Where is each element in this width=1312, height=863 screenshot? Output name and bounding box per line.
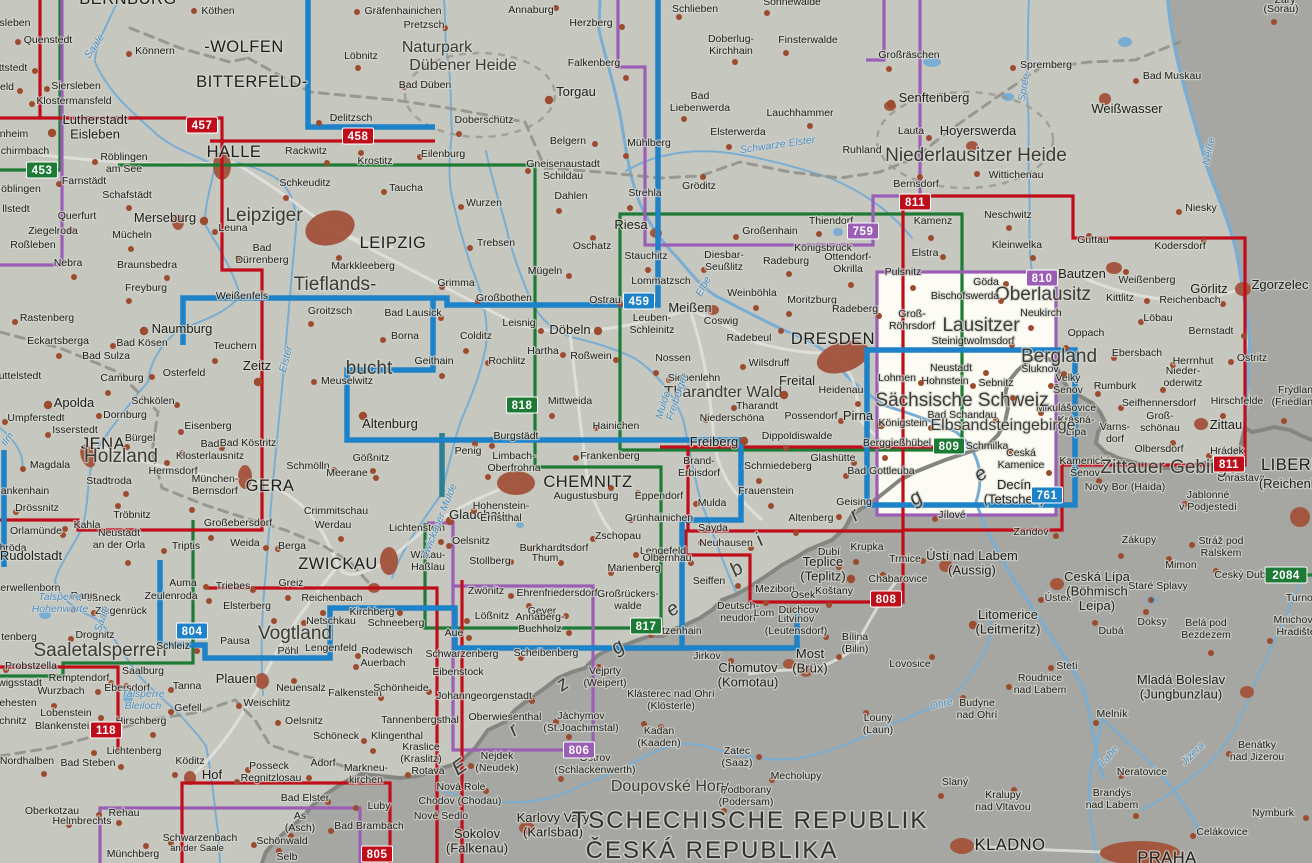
city-dot	[786, 271, 792, 277]
region-label: Vogtland	[258, 623, 332, 644]
city-label: Mezibori	[755, 583, 795, 595]
city-label: Brandýsnad Labem	[1086, 787, 1139, 811]
city-label: Bad Brambach	[334, 820, 404, 832]
city-label: Löbnitz	[344, 50, 378, 62]
city-label: LutherstadtEisleben	[62, 112, 127, 142]
city-label: DRESDEN	[791, 330, 875, 348]
city-label: Lauta	[898, 125, 924, 137]
city-label: Gröditz	[682, 180, 716, 192]
city-dot	[816, 231, 822, 237]
city-dot	[783, 445, 789, 451]
city-label: Schmiedeberg	[744, 460, 812, 472]
city-label: Stollberg	[469, 555, 511, 567]
city-dot	[1133, 78, 1139, 84]
city-label: Weinböhla	[727, 287, 777, 299]
city-dot	[56, 353, 62, 359]
city-label: Neukirch	[1020, 307, 1062, 319]
sheet-badge-809[interactable]: 809	[934, 438, 965, 454]
city-label: Nová Role	[436, 781, 485, 793]
sheet-badge-458[interactable]: 458	[343, 128, 374, 144]
city-label: Zákupy	[1122, 534, 1157, 546]
city-label: Stráž podRalskem	[1199, 535, 1244, 559]
city-label: Tannenbergsthal	[381, 714, 459, 726]
city-label: Rodewisch	[361, 645, 413, 657]
city-label: Penig	[455, 445, 482, 457]
city-dot	[940, 254, 946, 260]
city-dot	[149, 374, 155, 380]
sheet-badge-number: 459	[629, 296, 650, 308]
city-label: Weißenfels	[216, 290, 268, 302]
city-label: Frýdlant(Friedland)	[1272, 384, 1312, 408]
sheet-badge-759[interactable]: 759	[848, 223, 879, 239]
city-label: Altenburg	[362, 416, 418, 431]
city-label: Kittlitz	[1106, 292, 1134, 304]
city-label: Mügeln	[528, 265, 563, 277]
city-dot	[855, 401, 861, 407]
city-dot	[508, 593, 514, 599]
city-dot	[172, 772, 178, 778]
city-label: Freiberg	[690, 434, 738, 449]
city-dot	[212, 229, 218, 235]
city-label: Bad Düben	[399, 79, 452, 91]
city-dot	[549, 413, 555, 419]
city-dot	[370, 748, 376, 754]
city-dot	[983, 370, 989, 376]
city-dot	[807, 123, 813, 129]
sheet-badge-number: 804	[182, 626, 203, 638]
city-label: VelkýŠenov	[1053, 372, 1084, 396]
city-label: Belgern	[550, 135, 586, 147]
region-label: Saaletalsperren	[33, 640, 166, 661]
city-dot	[645, 267, 651, 273]
city-label: Berggießhübel	[863, 437, 931, 449]
city-label: Blankenstein	[35, 720, 95, 732]
city-dot	[556, 208, 562, 214]
city-label: Klostermansfeld	[36, 95, 111, 107]
city-label: Orlamünde	[10, 525, 62, 537]
city-label: Döbeln	[549, 322, 590, 337]
city-dot	[836, 514, 842, 520]
city-label: Schwarzenberg	[426, 648, 499, 660]
sheet-badge-804[interactable]: 804	[177, 623, 208, 639]
city-dot	[553, 5, 559, 11]
city-dot	[95, 689, 101, 695]
city-label: Hohnstein	[921, 375, 968, 387]
city-label: Taucha	[389, 182, 423, 194]
city-label: Elsterberg	[223, 600, 271, 612]
city-dot	[44, 86, 50, 92]
city-label: Zschopau	[595, 530, 641, 542]
city-label: Schneeberg	[368, 617, 425, 629]
city-dot	[970, 383, 976, 389]
city-dot	[126, 298, 132, 304]
city-label: an der Saale	[170, 843, 224, 854]
city-dot	[263, 545, 269, 551]
city-label: Großbothen	[476, 292, 532, 304]
city-dot	[126, 205, 132, 211]
city-label: Possendorf	[784, 410, 837, 422]
city-label: Schönheide	[373, 682, 429, 694]
region-label: Tieflands-	[294, 274, 377, 295]
city-label: Slaný	[942, 776, 969, 788]
city-label: Lom	[754, 607, 775, 619]
city-dot	[380, 337, 386, 343]
city-dot	[29, 101, 35, 107]
city-dot	[910, 285, 916, 291]
city-label: BERNBURG	[79, 0, 177, 8]
city-dot	[456, 131, 462, 137]
city-label: Colditz	[460, 330, 492, 342]
city-label: Kraslice(Kraslitz)	[400, 741, 441, 765]
city-label: Annaburg	[508, 4, 554, 16]
city-label: ankenhain	[1, 485, 50, 497]
city-label: Wurzen	[466, 197, 502, 209]
city-label: uttelstedt	[0, 370, 41, 382]
region-label: Dübener Heide	[409, 57, 517, 74]
city-label: Diesbar-Seußlitz	[704, 249, 744, 273]
city-dot	[467, 245, 473, 251]
city-label: tenberg	[1, 631, 37, 643]
sheet-badge-761[interactable]: 761	[1032, 487, 1063, 503]
sheet-badge-number: 810	[1032, 273, 1053, 285]
sheet-badge-453[interactable]: 453	[27, 162, 58, 178]
city-dot	[105, 390, 111, 396]
city-label: Falkenberg	[568, 57, 621, 69]
city-label: Hirschberg	[116, 715, 167, 727]
city-label: Pretzsch	[404, 19, 445, 31]
city-dot	[826, 602, 832, 608]
city-dot	[208, 535, 214, 541]
city-label: Mecholupy	[771, 770, 823, 782]
sheet-badge-number: 457	[192, 120, 213, 132]
region-label: Lausitzer	[942, 315, 1020, 336]
sheet-badge-805[interactable]: 805	[362, 846, 393, 862]
city-dot	[12, 319, 18, 325]
city-label: Guttau	[1077, 234, 1109, 246]
city-dot	[17, 88, 23, 94]
city-label: Weißenberg	[1118, 274, 1175, 286]
sheet-badge-817[interactable]: 817	[631, 618, 662, 634]
city-label: Köditz	[175, 755, 204, 767]
city-label: LEIPZIG	[360, 234, 427, 252]
city-label: Bernstadt	[1189, 325, 1234, 337]
city-dot	[1189, 542, 1195, 548]
city-label: Ruhland	[842, 144, 881, 156]
city-label: Nymburk	[1252, 807, 1295, 819]
city-label: Kleinwelka	[992, 239, 1042, 251]
city-label: Oschatz	[573, 240, 612, 252]
city-label: Rehau	[109, 807, 140, 819]
water-label: TalsperreHohenwarte	[32, 591, 89, 615]
city-label: Olbersdorf	[1134, 443, 1183, 455]
city-label: Lovosice	[889, 658, 931, 670]
city-label: Merseburg	[134, 210, 196, 225]
city-label: Coswig	[704, 315, 739, 327]
sheet-badge-457[interactable]: 457	[187, 117, 218, 133]
city-dot	[161, 548, 167, 554]
city-label: Magdala	[30, 459, 70, 471]
city-label: chnitz	[0, 715, 27, 727]
city-label: Bad Elster	[281, 792, 330, 804]
city-dot	[191, 8, 197, 14]
city-label: Berga	[278, 540, 306, 552]
sheet-badge-number: 811	[1219, 459, 1239, 471]
city-label: Teplice(Teplitz)	[800, 554, 846, 584]
city-dot	[373, 475, 379, 481]
city-label: Stadtroda	[86, 475, 132, 487]
country-label: ČESKÁ REPUBLIKA	[586, 836, 839, 863]
city-label: Dahlen	[554, 190, 587, 202]
sheet-badge-number: 808	[876, 594, 897, 606]
city-dot	[938, 793, 944, 799]
city-dot	[756, 478, 762, 484]
city-label: Lobenstein	[40, 707, 92, 719]
city-dot	[328, 828, 334, 834]
city-label: Staré Splavy	[1128, 580, 1188, 592]
city-dot	[573, 455, 579, 461]
city-dot	[753, 305, 759, 311]
city-label: Rudolstadt	[0, 548, 62, 563]
city-label: Schkeuditz	[279, 177, 330, 189]
sheet-badge-number: 818	[512, 400, 533, 412]
city-dot	[653, 370, 659, 376]
city-label: Finsterwalde	[778, 34, 838, 46]
sheet-badge-808[interactable]: 808	[871, 591, 902, 607]
city-label: Schmilka	[966, 440, 1009, 452]
city-dot	[164, 275, 170, 281]
city-label: Osek	[791, 589, 816, 601]
city-label: GERA	[246, 477, 295, 495]
urban-area	[1050, 578, 1064, 590]
city-dot	[1028, 325, 1034, 331]
city-dot	[1038, 597, 1044, 603]
city-label: BITTERFELD-	[196, 73, 308, 91]
sheet-badge-2084[interactable]: 2084	[1265, 567, 1307, 583]
city-label: Geithain	[414, 355, 453, 367]
city-dot	[468, 763, 474, 769]
city-label: Jirkov	[693, 650, 721, 662]
city-label: Zwönitz	[468, 585, 504, 597]
city-label: Pöhl	[277, 645, 298, 657]
city-label: öblingen	[1, 183, 41, 195]
city-dot	[1010, 395, 1016, 401]
sheet-badge-number: 817	[636, 621, 657, 633]
city-label: Oelsnitz	[452, 535, 490, 547]
city-dot	[308, 321, 314, 327]
city-label: Herrnhut	[1173, 355, 1214, 367]
city-dot	[370, 468, 376, 474]
sheet-badge-810[interactable]: 810	[1027, 270, 1058, 286]
sheet-badge-number: 806	[569, 745, 590, 757]
city-label: Thiendorf	[809, 215, 853, 227]
city-label: Senftenberg	[899, 90, 970, 105]
city-label: Osterfeld	[163, 367, 206, 379]
city-dot	[1048, 665, 1054, 671]
city-label: Oberwiesenthal	[469, 711, 542, 723]
city-dot	[1006, 684, 1012, 690]
sheet-badge-806[interactable]: 806	[564, 742, 595, 758]
city-dot	[764, 10, 770, 16]
city-label: Scheibenberg	[514, 647, 579, 659]
city-label: Trmice	[889, 553, 921, 565]
region-label: Niederlausitzer Heide	[885, 145, 1067, 166]
city-label: Krostitz	[357, 155, 392, 167]
city-dot	[566, 734, 572, 740]
city-dot	[932, 516, 938, 522]
urban-area	[1194, 418, 1208, 430]
city-dot	[974, 171, 980, 177]
sheet-badge-number: 805	[367, 849, 388, 861]
city-label: Bernsdorf	[893, 178, 939, 190]
city-label: Ehrenfriedersdorf	[516, 587, 597, 599]
city-label: Zittau	[1210, 417, 1243, 432]
city-label: Elstra	[912, 247, 939, 259]
city-dot	[740, 364, 746, 370]
city-label: Meißen	[668, 300, 711, 315]
city-label: Mühlberg	[627, 137, 671, 149]
city-dot	[613, 357, 619, 363]
city-dot	[96, 413, 102, 419]
city-dot	[200, 217, 208, 225]
city-label: Gößnitz	[353, 452, 390, 464]
map-stage: BERNBURGKöthenGräfenhainichenPretzschAnn…	[0, 0, 1312, 863]
sheet-badge-818[interactable]: 818	[507, 397, 538, 413]
city-label: Hartha	[527, 345, 559, 357]
lake	[833, 228, 843, 236]
city-label: Pirna	[843, 408, 874, 423]
city-label: Triebes	[216, 580, 251, 592]
city-dot	[254, 378, 262, 386]
city-label: Helmbrechts	[53, 815, 112, 827]
city-dot	[558, 776, 564, 782]
city-label: Heidenau	[819, 384, 864, 396]
city-label: Bad Muskau	[1143, 70, 1202, 82]
city-label: Könnern	[135, 45, 175, 57]
city-label: Bad Sulza	[82, 350, 130, 362]
city-dot	[236, 703, 242, 709]
city-dot	[926, 135, 932, 141]
city-dot	[882, 455, 888, 461]
city-label: Lommatzsch	[631, 275, 691, 287]
city-dot	[140, 327, 148, 335]
city-dot	[786, 311, 792, 317]
city-label: Sayda	[698, 522, 728, 534]
city-dot	[1133, 813, 1139, 819]
city-label: Siersleben	[51, 80, 101, 92]
city-dot	[464, 618, 470, 624]
city-dot	[918, 380, 924, 386]
city-label: Zeitz	[243, 358, 271, 373]
region-label: Sächsische Schweiz	[875, 390, 1048, 411]
city-dot	[594, 327, 602, 335]
city-dot	[853, 559, 859, 565]
city-label: ZWICKAU	[298, 555, 378, 573]
sheet-badge-459[interactable]: 459	[624, 293, 655, 309]
city-label: Weißwasser	[1091, 101, 1163, 116]
city-dot	[463, 348, 469, 354]
sheet-badge-811[interactable]: 811	[1214, 456, 1245, 472]
city-label: Oppach	[1068, 327, 1105, 339]
city-label: Dippoldiswalde	[762, 430, 833, 442]
sheet-badge-number: 118	[96, 725, 116, 737]
city-dot	[740, 437, 748, 445]
city-label: Mücheln	[112, 229, 152, 241]
city-label: Radebeul	[727, 332, 772, 344]
city-label: MnichovoHradište	[1274, 614, 1312, 638]
city-label: Freital	[779, 373, 815, 388]
city-label: Weida	[230, 537, 260, 549]
city-label: Selb	[276, 851, 297, 863]
city-label: Dubá	[1098, 625, 1123, 637]
city-label: Meuselwitz	[321, 375, 373, 387]
city-label: Teuchern	[213, 340, 256, 352]
city-dot	[212, 358, 218, 364]
city-dot	[489, 443, 495, 449]
city-label: Belá podBezdezem	[1181, 617, 1231, 641]
city-label: Hirschfelde	[1211, 395, 1264, 407]
city-label: Oelsnitz	[285, 715, 323, 727]
city-label: Hainichen	[593, 420, 640, 432]
city-dot	[768, 503, 774, 509]
city-dot	[1208, 650, 1214, 656]
city-label: Trebsen	[477, 237, 515, 249]
city-label: Leisnig	[502, 317, 535, 329]
city-label: Bílina(Bilin)	[842, 631, 869, 655]
city-label: Nový Bor (Haida)	[1085, 481, 1166, 493]
city-label: Ebersbach	[1112, 347, 1162, 359]
city-label: Großräschen	[878, 49, 939, 61]
city-dot	[886, 66, 892, 72]
city-label: Löbau	[1143, 312, 1172, 324]
city-label: Celákovice	[1196, 826, 1248, 838]
city-dot	[123, 491, 129, 497]
city-label: Auma	[169, 577, 197, 589]
city-label: Chabarovice	[869, 573, 928, 585]
city-label: Bad Kösen	[116, 337, 168, 349]
sheet-badge-118[interactable]: 118	[91, 722, 122, 738]
city-label: Bad Steben	[61, 757, 116, 769]
city-dot	[354, 9, 360, 15]
city-label: Kadan(Kaaden)	[637, 725, 680, 749]
city-dot	[178, 429, 184, 435]
city-dot	[234, 779, 240, 785]
city-label: Triptis	[172, 540, 200, 552]
city-dot	[324, 160, 330, 166]
city-label: Doberschütz	[455, 114, 514, 126]
city-label: Radeburg	[763, 255, 809, 267]
city-label: Grünhainichen	[625, 512, 693, 524]
city-label: Frankenberg	[580, 450, 640, 462]
city-label: Doksy	[1137, 616, 1167, 628]
city-label: (Reichenberg)	[1259, 476, 1312, 491]
city-dot	[45, 432, 51, 438]
city-label: Naumburg	[152, 321, 213, 336]
city-label: -WOLFEN	[204, 38, 284, 56]
city-dot	[250, 587, 256, 593]
city-dot	[41, 771, 47, 777]
region-label: Elbsandsteingebirge	[931, 417, 1076, 434]
sheet-badge-811[interactable]: 811	[900, 194, 931, 210]
city-label: Apolda	[54, 395, 95, 410]
city-label: Burgstädt	[494, 430, 539, 442]
city-label: Neschwitz	[984, 209, 1032, 221]
city-dot	[623, 153, 629, 159]
city-label: Jílové	[938, 509, 966, 521]
city-label: Brand-Erbisdorf	[678, 455, 720, 479]
city-label: Roßwein	[570, 350, 612, 362]
city-label: Freyburg	[125, 282, 167, 294]
city-dot	[283, 195, 289, 201]
